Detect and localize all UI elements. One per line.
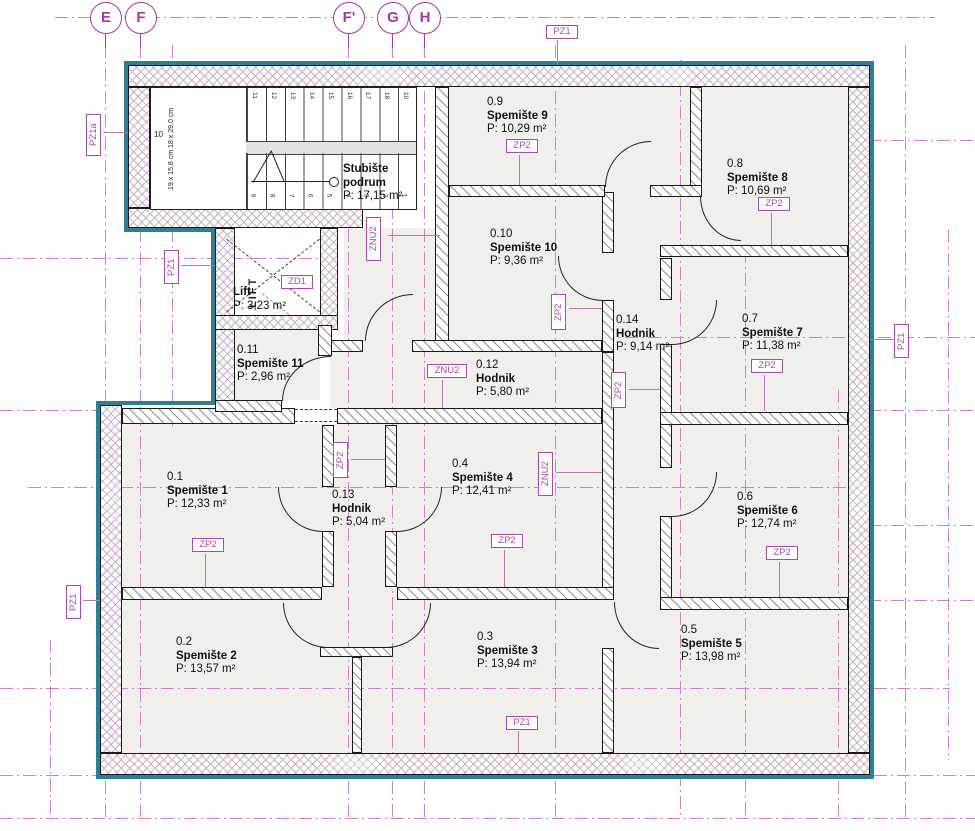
room-area: P: 5,80 m² [476,386,529,400]
room-number: 0.9 [487,96,548,110]
tag-leader [103,132,128,133]
grid-line-vertical [905,45,906,818]
exterior-outline [96,775,874,779]
lift-label: Lift P: 3,23 m² [233,286,286,313]
tag-leader [764,375,765,411]
interior-wall [660,412,848,425]
interior-wall [322,531,334,587]
tag-pz1-left-lower: PZ1 [66,585,81,619]
room-area: P: 9,14 m² [616,341,669,355]
grid-line-horizontal [868,140,975,141]
interior-wall [602,648,614,753]
room-number: 0.4 [452,458,513,472]
stair-direction-marker [329,177,339,187]
exterior-wall [848,87,870,753]
interior-wall [449,185,605,197]
room-name: Spemište 1 [167,485,228,499]
room-number: 0.8 [727,158,788,172]
stair-tread-number: 11 [251,92,258,99]
stair-tread-number: 12 [270,92,277,99]
interior-wall [397,587,614,600]
room-area: P: 13,94 m² [477,658,538,672]
tag-leader [442,380,443,408]
room-number: 0.12 [476,359,529,373]
grid-line-horizontal [0,775,98,776]
room-label-0-10: 0.10 Spemište 10 P: 9,36 m² [490,228,557,269]
stair-tread-dim: 18 x 29,0 cm [168,108,175,148]
tag-zp2-room-09: ZP2 [506,139,538,153]
room-area: P: 12,33 m² [167,498,228,512]
axis-stem [105,32,106,48]
room-name: Spemište 3 [477,645,538,659]
tag-pz1-bottom: PZ1 [506,716,538,730]
axis-stem [140,32,141,48]
tag-znu2-hodnik-012: ZNU2 [427,364,467,378]
tag-zp2-room-07: ZP2 [751,359,783,373]
interior-wall [352,657,362,753]
stair-tread-number: 15 [327,92,334,99]
grid-line-vertical [948,230,949,760]
tag-zp2-hodnik-010: ZP2 [551,294,566,330]
stair-tread-number: 17 [365,92,372,99]
wall-opening-dashed [295,409,337,410]
room-area: P: 13,57 m² [176,663,237,677]
room-name: Spemište 11 [237,358,303,372]
exterior-wall [100,405,122,753]
grid-line-horizontal [868,410,975,411]
tag-leader [870,339,895,340]
room-label-0-8: 0.8 Spemište 8 P: 10,69 m² [727,158,788,199]
exterior-outline [124,228,215,232]
room-label-0-3: 0.3 Spemište 3 P: 13,94 m² [477,631,538,672]
room-area: P: 2,96 m² [237,371,303,385]
stair-tread-number: 19 [402,92,409,99]
room-name: Hodnik [476,373,529,387]
tag-zp2-room-04: ZP2 [491,534,523,548]
stair-tread-number: 5 [325,194,332,198]
tag-leader [771,213,772,245]
tag-leader [205,554,206,587]
interior-wall [660,597,848,610]
grid-line-horizontal [0,818,975,819]
room-number: 0.14 [616,314,669,328]
tag-zp2-room-08: ZP2 [758,197,790,211]
stair-riser-dim: 19 x 15,8 cm [168,150,175,190]
exterior-wall [128,65,870,87]
grid-line-horizontal [868,600,975,601]
floor-plan: E F F' G H 10 19 x 15,8 cm 18 x 29,0 cm … [0,0,975,831]
stair-tread-number: 14 [308,92,315,99]
stair-tread-number: 16 [346,92,353,99]
stair-label: Stubište podrum P: 17,15 m² [343,163,402,204]
room-label-0-13: 0.13 Hodnik P: 5,04 m² [332,489,385,530]
room-name: Spemište 10 [490,242,557,256]
grid-line-vertical [50,640,51,820]
tag-leader [569,308,602,309]
interior-wall [650,185,702,197]
interior-wall [385,531,397,587]
room-area: P: 9,36 m² [490,255,557,269]
room-label-0-1: 0.1 Spemište 1 P: 12,33 m² [167,471,228,512]
tag-leader [518,731,519,753]
tag-pz1-left-upper: PZ1 [164,250,179,284]
exterior-outline [870,61,874,779]
room-name: Spemište 8 [727,172,788,186]
stair-name-line1: Stubište [343,163,402,177]
grid-line-horizontal [868,525,975,526]
interior-wall [602,192,614,253]
exterior-wall [320,228,338,325]
lift-name: Lift [233,286,286,300]
tag-leader [519,155,520,185]
room-number: 0.3 [477,631,538,645]
exterior-wall [128,208,363,228]
room-name: Spemište 5 [681,638,742,652]
grid-line-vertical [424,45,425,818]
room-area: P: 12,74 m² [737,518,798,532]
interior-wall [318,325,332,356]
interior-wall [660,344,672,468]
interior-wall [337,408,602,424]
axis-bubble-e: E [90,2,122,34]
interior-wall [660,245,848,257]
tag-pz1-right: PZ1 [894,324,909,358]
room-number: 0.10 [490,228,557,242]
axis-bubble-f: F [125,2,157,34]
room-name: Spemište 9 [487,110,548,124]
room-area: P: 12,41 m² [452,485,513,499]
room-name: Spemište 7 [742,327,803,341]
tag-leader [351,459,385,460]
tag-pz1a-left: PZ1a [86,114,101,156]
room-number: 0.5 [681,624,742,638]
room-label-0-14: 0.14 Hodnik P: 9,14 m² [616,314,669,355]
tag-znu2-stair: ZNU2 [366,217,381,261]
stair-area: P: 17,15 m² [343,190,402,204]
tag-zp2-room-06: ZP2 [766,546,798,560]
room-number: 0.7 [742,313,803,327]
interior-wall [412,340,602,352]
interior-wall [320,647,393,657]
lift-area: P: 3,23 m² [233,300,286,314]
interior-wall [690,87,702,192]
stair-name-line2: podrum [343,177,402,191]
stair-tread-number: 8 [268,194,275,198]
tag-pz1-top: PZ1 [546,25,578,39]
room-area: P: 13,98 m² [681,651,742,665]
tag-leader [556,472,602,473]
room-area: P: 5,04 m² [332,516,385,530]
stair-tread-number: 6 [306,194,313,198]
interior-wall [660,258,672,300]
exterior-wall [100,753,870,775]
stair-tread-number: 9 [249,194,256,198]
tag-zp2-hodnik-014: ZP2 [611,372,626,408]
tag-leader [388,235,440,236]
axis-bubble-h: H [409,2,441,34]
room-name: Hodnik [616,328,669,342]
interior-wall [435,87,449,345]
interior-wall [602,300,614,352]
grid-line-vertical [555,45,556,818]
room-label-0-12: 0.12 Hodnik P: 5,80 m² [476,359,529,400]
tag-znu2-room-04: ZNU2 [538,452,553,496]
tag-leader [557,40,558,65]
wall-opening-dashed [295,421,337,422]
stair-direction-line [251,181,331,182]
interior-wall [122,587,322,600]
stair-landing-number: 10 [154,130,163,139]
stair-dimensions: 19 x 15,8 cm 18 x 29,0 cm [167,106,176,190]
interior-wall [660,516,672,600]
interior-wall [385,425,397,487]
room-number: 0.11 [237,344,303,358]
axis-stem [348,32,349,48]
room-label-0-5: 0.5 Spemište 5 P: 13,98 m² [681,624,742,665]
tag-leader [629,389,660,390]
stair-tread-number: 13 [289,92,296,99]
tag-leader [83,600,100,601]
room-number: 0.2 [176,636,237,650]
room-name: Spemište 4 [452,472,513,486]
room-label-0-9: 0.9 Spemište 9 P: 10,29 m² [487,96,548,137]
grid-line-horizontal [874,775,975,776]
room-label-0-11: 0.11 Spemište 11 P: 2,96 m² [237,344,303,385]
room-name: Spemište 6 [737,505,798,519]
room-number: 0.6 [737,491,798,505]
stair-tread-number: 18 [383,92,390,99]
interior-wall [215,400,282,412]
stair-tread-number: 7 [287,194,294,198]
tag-zp2-hodnik-013: ZP2 [333,442,348,478]
room-label-0-7: 0.7 Spemište 7 P: 11,38 m² [742,313,803,354]
tag-leader [181,265,215,266]
grid-line-horizontal [55,17,935,18]
axis-bubble-g: G [377,2,409,34]
room-area: P: 11,38 m² [742,340,803,354]
room-area: P: 10,29 m² [487,123,548,137]
room-number: 0.13 [332,489,385,503]
room-name: Spemište 2 [176,650,237,664]
tag-leader [504,550,505,587]
axis-stem [392,32,393,48]
room-area: P: 10,69 m² [727,185,788,199]
room-label-0-6: 0.6 Spemište 6 P: 12,74 m² [737,491,798,532]
grid-line-horizontal [0,688,950,689]
exterior-wall [128,87,150,208]
room-label-0-4: 0.4 Spemište 4 P: 12,41 m² [452,458,513,499]
axis-bubble-f-prime: F' [333,2,365,34]
interior-wall [330,340,363,352]
room-number: 0.1 [167,471,228,485]
axis-stem [424,32,425,48]
room-name: Hodnik [332,503,385,517]
grid-line-vertical [680,60,681,818]
tag-leader [779,562,780,597]
tag-zp2-room-01: ZP2 [192,538,224,552]
room-label-0-2: 0.2 Spemište 2 P: 13,57 m² [176,636,237,677]
